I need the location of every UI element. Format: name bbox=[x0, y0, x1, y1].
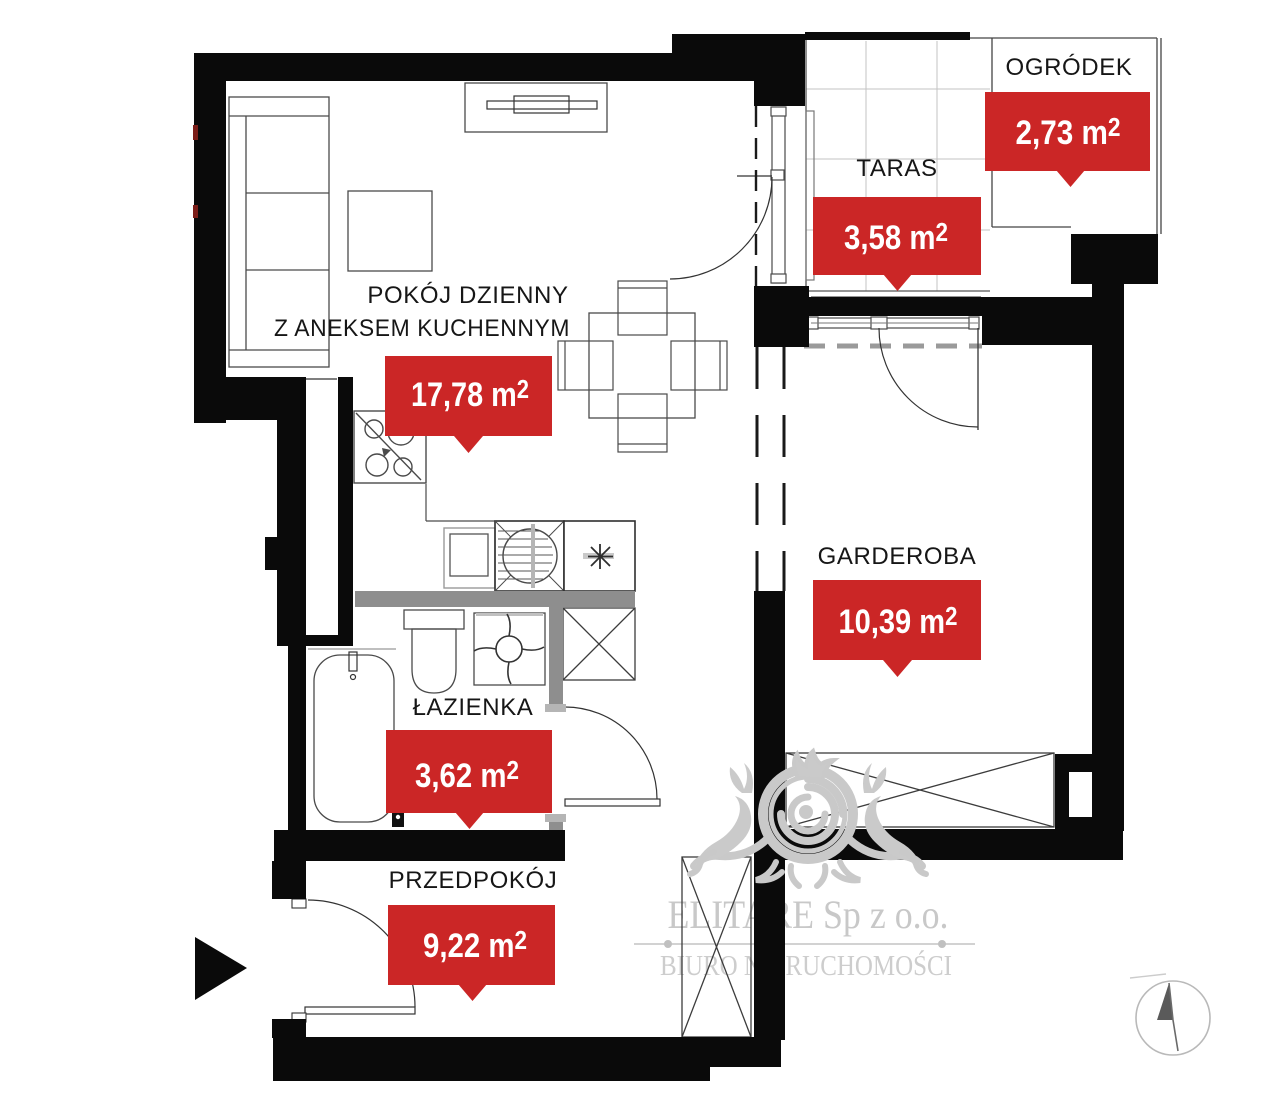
svg-text:PRZEDPOKÓJ: PRZEDPOKÓJ bbox=[389, 867, 558, 894]
svg-text:BIURO NIERUCHOMOŚCI: BIURO NIERUCHOMOŚCI bbox=[660, 949, 952, 982]
svg-text:Z ANEKSEM KUCHENNYM: Z ANEKSEM KUCHENNYM bbox=[274, 315, 570, 342]
svg-text:9,22 m2: 9,22 m2 bbox=[423, 925, 527, 965]
svg-text:OGRÓDEK: OGRÓDEK bbox=[1006, 54, 1133, 81]
svg-text:3,58 m2: 3,58 m2 bbox=[844, 217, 948, 257]
svg-text:10,39 m2: 10,39 m2 bbox=[839, 601, 958, 641]
svg-text:17,78 m2: 17,78 m2 bbox=[411, 374, 529, 414]
svg-text:POKÓJ DZIENNY: POKÓJ DZIENNY bbox=[367, 282, 568, 309]
svg-text:3,62 m2: 3,62 m2 bbox=[415, 755, 519, 795]
svg-text:TARAS: TARAS bbox=[856, 155, 937, 182]
svg-text:2,73 m2: 2,73 m2 bbox=[1016, 112, 1121, 152]
svg-text:ŁAZIENKA: ŁAZIENKA bbox=[413, 694, 534, 721]
svg-text:GARDEROBA: GARDEROBA bbox=[818, 543, 977, 570]
